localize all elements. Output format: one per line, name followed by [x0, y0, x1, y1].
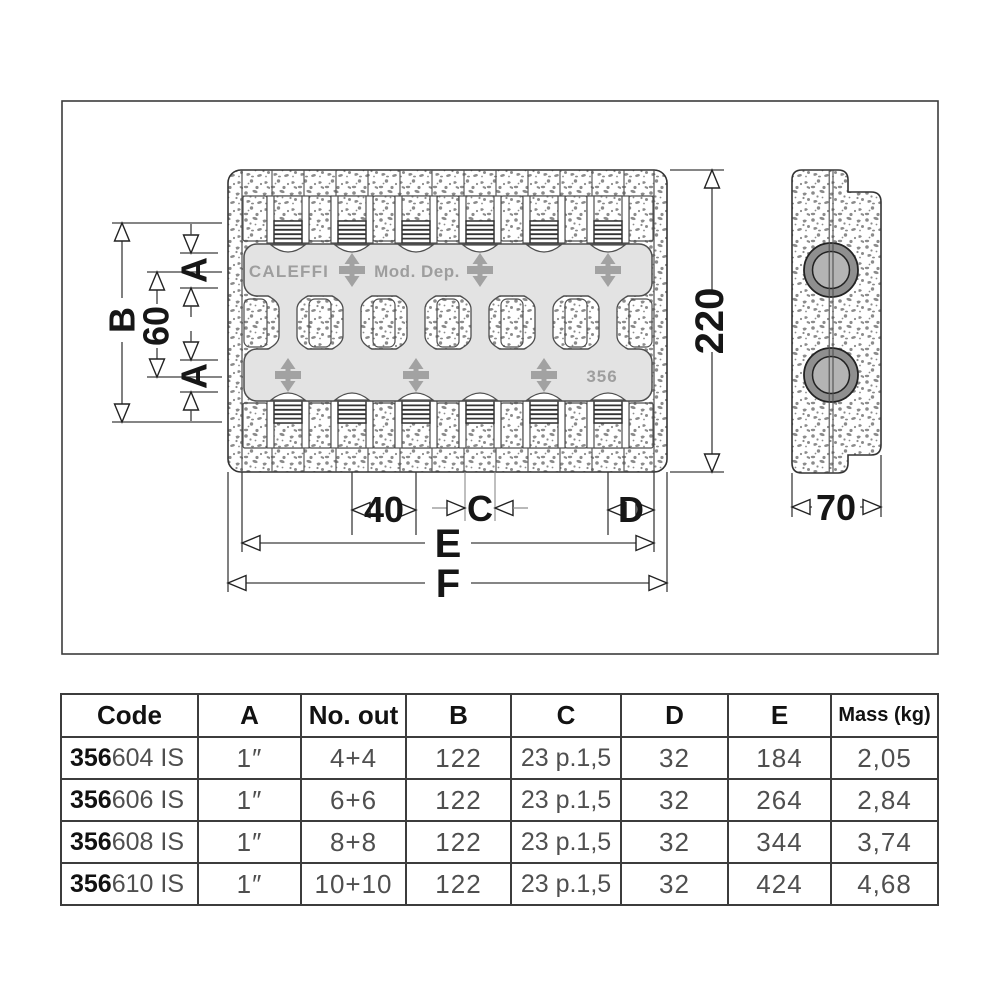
- code-suffix: 610 IS: [112, 870, 184, 898]
- dim-label-C: C: [467, 488, 493, 529]
- caleffi-logo-text: CALEFFI: [249, 262, 329, 281]
- mod-dep-text: Mod. Dep.: [374, 262, 460, 281]
- col-header-c: C: [511, 694, 621, 737]
- d-cell: 32: [621, 863, 728, 905]
- a-cell: 1″: [198, 737, 301, 779]
- insulation-side: [792, 170, 881, 473]
- spec-table-header-row: Code A No. out B C D E Mass (kg): [61, 694, 938, 737]
- code-prefix: 356: [70, 744, 112, 772]
- no-out-cell: 4+4: [301, 737, 406, 779]
- code-suffix: 608 IS: [112, 828, 184, 856]
- no-out-cell: 6+6: [301, 779, 406, 821]
- e-cell: 264: [728, 779, 831, 821]
- dim-label-D: D: [618, 489, 644, 530]
- col-header-d: D: [621, 694, 728, 737]
- d-cell: 32: [621, 779, 728, 821]
- spec-table: Code A No. out B C D E Mass (kg) 356604 …: [60, 693, 939, 906]
- code-cell: 356606 IS: [61, 779, 198, 821]
- return-port-bore: [813, 357, 850, 394]
- mass-cell: 4,68: [831, 863, 938, 905]
- code-cell: 356610 IS: [61, 863, 198, 905]
- dim-label-70: 70: [816, 487, 856, 528]
- c-cell: 23 p.1,5: [511, 863, 621, 905]
- table-row: 356604 IS 1″ 4+4 122 23 p.1,5 32 184 2,0…: [61, 737, 938, 779]
- dim-label-40: 40: [364, 489, 404, 530]
- dim-label-60: 60: [136, 306, 177, 346]
- front-view-manifold: CALEFFI Mod. Dep. 356: [228, 170, 667, 472]
- no-out-cell: 8+8: [301, 821, 406, 863]
- code-cell: 356604 IS: [61, 737, 198, 779]
- c-cell: 23 p.1,5: [511, 737, 621, 779]
- col-header-mass: Mass (kg): [831, 694, 938, 737]
- col-header-e: E: [728, 694, 831, 737]
- table-row: 356610 IS 1″ 10+10 122 23 p.1,5 32 424 4…: [61, 863, 938, 905]
- a-cell: 1″: [198, 863, 301, 905]
- code-prefix: 356: [70, 870, 112, 898]
- b-cell: 122: [406, 821, 511, 863]
- code-prefix: 356: [70, 828, 112, 856]
- col-header-b: B: [406, 694, 511, 737]
- d-cell: 32: [621, 821, 728, 863]
- dim-label-A-bottom: A: [174, 363, 215, 389]
- code-suffix: 604 IS: [112, 744, 184, 772]
- side-view-manifold: [792, 170, 881, 473]
- dim-label-E: E: [435, 522, 462, 566]
- dim-label-220: 220: [688, 288, 732, 355]
- code-prefix: 356: [70, 786, 112, 814]
- a-cell: 1″: [198, 779, 301, 821]
- col-header-a: A: [198, 694, 301, 737]
- flow-port-bore: [813, 252, 850, 289]
- technical-drawing: CALEFFI Mod. Dep. 356 B 60 A A 220 40 C …: [0, 0, 1000, 680]
- col-header-no-out: No. out: [301, 694, 406, 737]
- e-cell: 184: [728, 737, 831, 779]
- b-cell: 122: [406, 737, 511, 779]
- col-header-code: Code: [61, 694, 198, 737]
- mass-cell: 3,74: [831, 821, 938, 863]
- e-cell: 424: [728, 863, 831, 905]
- dim-label-A-top: A: [174, 257, 215, 283]
- no-out-cell: 10+10: [301, 863, 406, 905]
- dim-label-F: F: [436, 562, 460, 606]
- datasheet-page: CALEFFI Mod. Dep. 356 B 60 A A 220 40 C …: [0, 0, 1000, 1000]
- code-suffix: 606 IS: [112, 786, 184, 814]
- series-356-text: 356: [586, 367, 617, 386]
- e-cell: 344: [728, 821, 831, 863]
- b-cell: 122: [406, 863, 511, 905]
- d-cell: 32: [621, 737, 728, 779]
- mass-cell: 2,84: [831, 779, 938, 821]
- b-cell: 122: [406, 779, 511, 821]
- code-cell: 356608 IS: [61, 821, 198, 863]
- c-cell: 23 p.1,5: [511, 821, 621, 863]
- table-row: 356606 IS 1″ 6+6 122 23 p.1,5 32 264 2,8…: [61, 779, 938, 821]
- a-cell: 1″: [198, 821, 301, 863]
- table-row: 356608 IS 1″ 8+8 122 23 p.1,5 32 344 3,7…: [61, 821, 938, 863]
- mass-cell: 2,05: [831, 737, 938, 779]
- c-cell: 23 p.1,5: [511, 779, 621, 821]
